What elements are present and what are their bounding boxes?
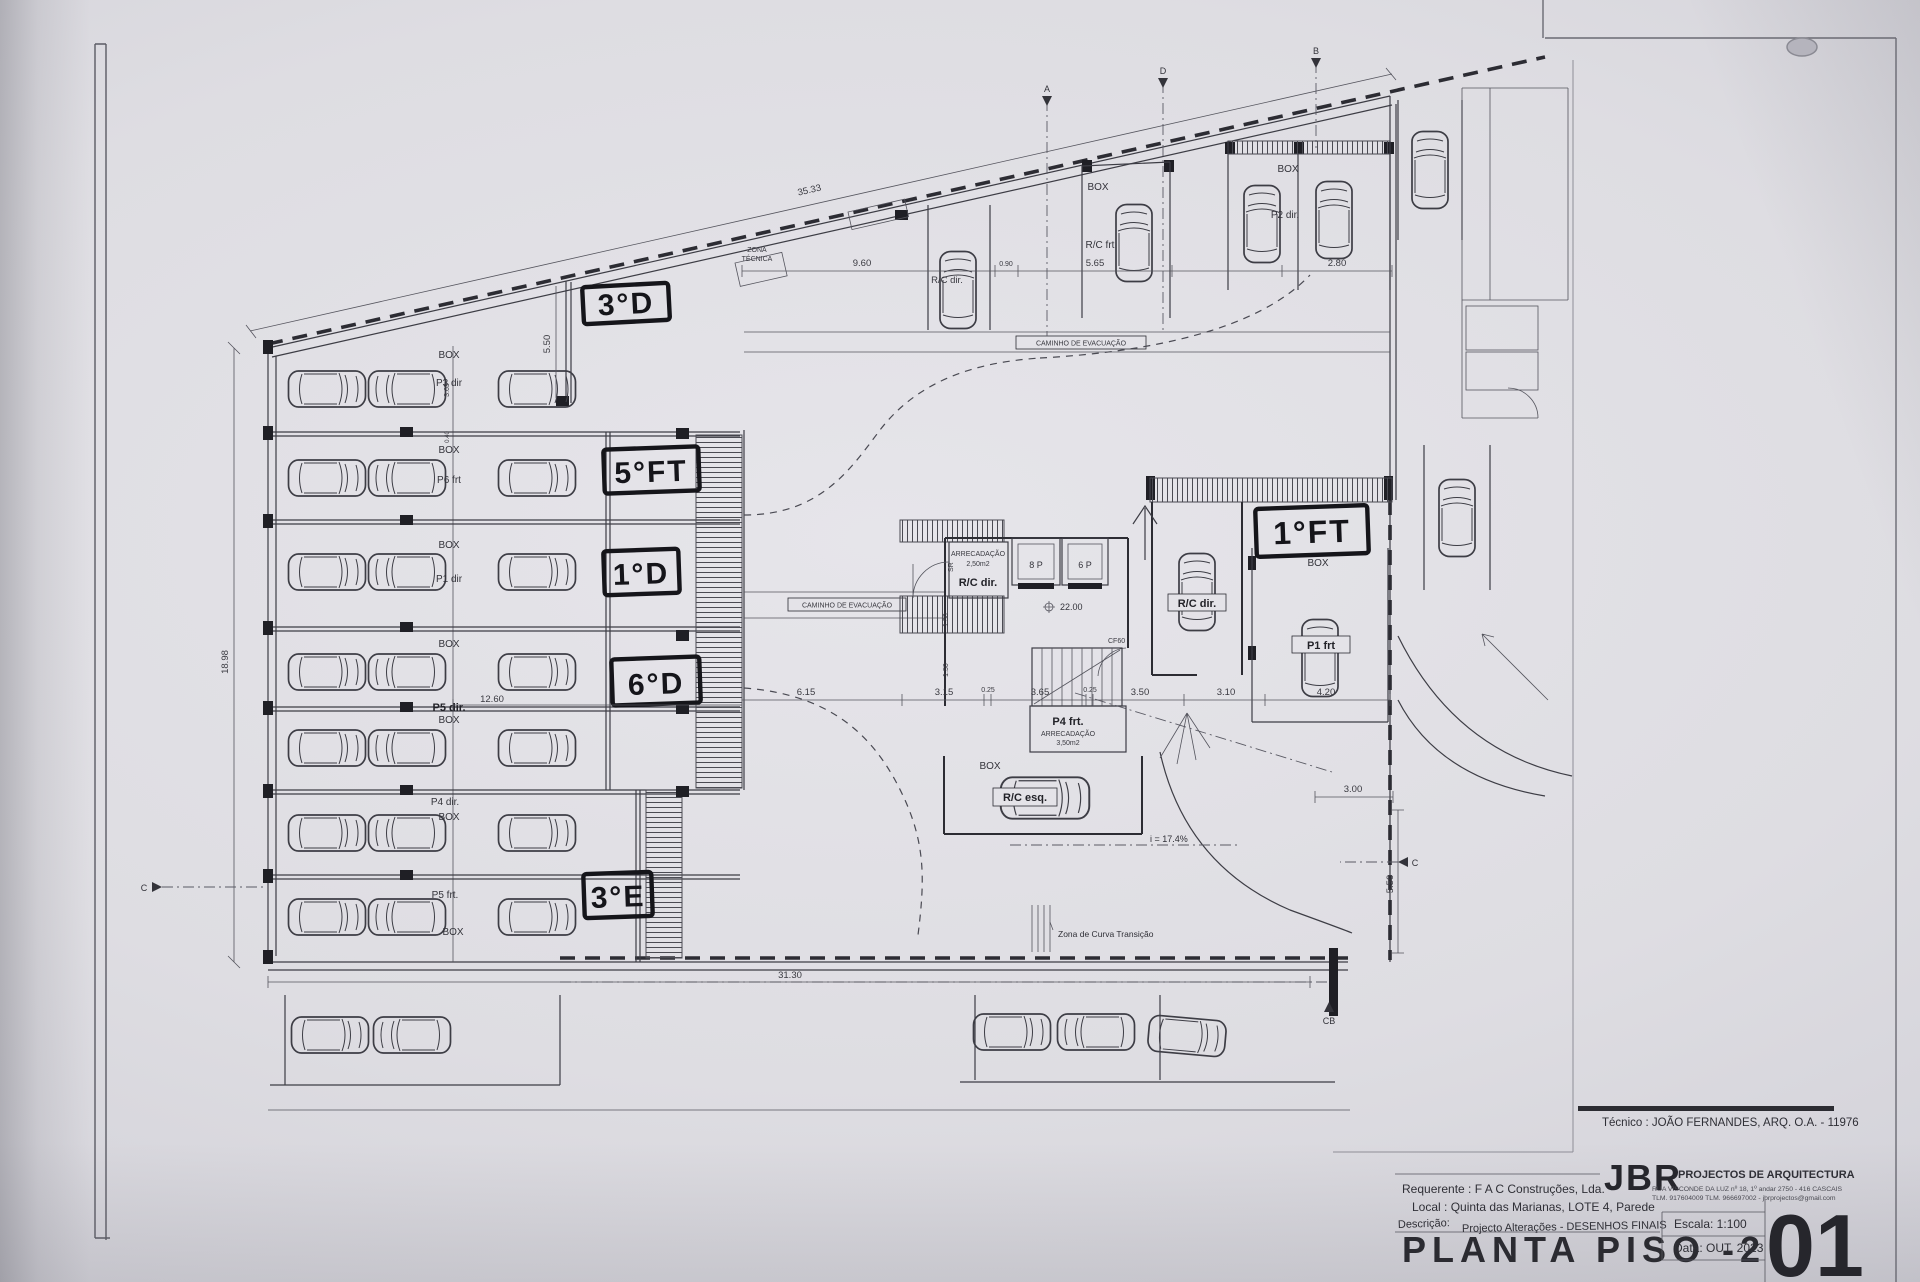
bottom-bay: BOX R/C esq. — [944, 756, 1142, 834]
bottom-bay-box-label: BOX — [979, 761, 1000, 772]
left-parking-walls — [268, 281, 744, 962]
storage-2-title: ARRECADAÇÃO — [1041, 729, 1096, 738]
plan-notes: i = 17.4% Zona de Curva Transição — [1050, 834, 1188, 939]
punch-hole — [1787, 38, 1817, 56]
storage-1-area: 2,50m2 — [966, 561, 989, 568]
top-parking-bays: R/C dir. BOX R/C frt BOX P2 dir. — [928, 141, 1390, 330]
stall-label: P6 frt — [437, 475, 461, 486]
section-marker-c-left: C — [141, 883, 148, 893]
lift-left-label: 8 P — [1029, 560, 1043, 570]
firm-name: PROJECTOS DE ARQUITECTURA — [1678, 1169, 1855, 1181]
stall-box-label: BOX — [442, 927, 463, 938]
handwritten-unit-1D: 1°D — [612, 557, 669, 592]
storage-1-title: ARRECADAÇÃO — [951, 549, 1006, 558]
ramp-car-unit-label: R/C dir. — [931, 275, 963, 286]
dim-left-total: 18.98 — [220, 650, 231, 674]
caminho-evacuacao-left-label: CAMINHO DE EVACUAÇÃO — [802, 601, 893, 610]
dim-core-b: 1.50 — [943, 663, 950, 677]
handwritten-unit-6D: 6°D — [627, 667, 684, 702]
dim-right-vertical: 5.50 — [1385, 875, 1396, 894]
dim-upper-left-vertical: 5.50 — [542, 335, 553, 354]
top-mid-box-label: BOX — [1087, 182, 1108, 193]
zona-tecnica: ZONA TÉCNICA — [735, 199, 909, 286]
stall-box-label: BOX — [438, 812, 459, 823]
top-right-unit-label: P2 dir. — [1271, 210, 1299, 221]
slope-label: i = 17.4% — [1150, 834, 1188, 844]
top-right-box-label: BOX — [1277, 164, 1298, 175]
stall-box-label: BOX — [438, 715, 459, 726]
storage-2-area: 3,50m2 — [1056, 740, 1079, 747]
handwritten-unit-5FT: 5°FT — [614, 455, 688, 491]
dim-top-1: 9.60 — [853, 258, 872, 269]
zona-tecnica-label-2: TÉCNICA — [742, 254, 773, 263]
photo-of-architectural-plan: BOX P3 dir BOX P6 frt BOX P1 dir BOX P5 … — [0, 0, 1920, 1282]
section-marker-cb: CB — [1323, 1016, 1336, 1026]
handwritten-unit-3D: 3°D — [597, 287, 655, 323]
dimensions: 35.33 18.98 9.60 0.90 5.65 2.80 12.60 6.… — [220, 68, 1404, 988]
parked-cars-left-block — [289, 371, 576, 935]
adjacent-structures — [1398, 88, 1572, 796]
sheet-frame — [95, 0, 1896, 1282]
stall-box-label: BOX — [438, 445, 459, 456]
dim-mid-5: 0.25 — [1083, 687, 1097, 694]
caminho-evacuacao-top-label: CAMINHO DE EVACUAÇÃO — [1036, 339, 1127, 348]
section-marker-b: B — [1313, 46, 1319, 56]
local-line: Local : Quinta das Marianas, LOTE 4, Par… — [1412, 1200, 1655, 1214]
bottom-bay-unit-label: R/C esq. — [1003, 792, 1047, 804]
section-marker-d: D — [1160, 66, 1167, 76]
dim-mid-8: 4.20 — [1317, 687, 1336, 698]
wall-pillars — [263, 142, 1394, 964]
stall-box-label: BOX — [438, 540, 459, 551]
center-bay-unit-label: R/C dir. — [1178, 598, 1217, 610]
dim-top-3: 5.65 — [1086, 258, 1105, 269]
dim-mid-6: 3.50 — [1131, 687, 1150, 698]
storage-1-code: SR — [948, 562, 955, 572]
stall-label: P5 dir. — [432, 702, 465, 714]
dim-mid-1: 6.15 — [797, 687, 816, 698]
section-marker-c-right: C — [1412, 858, 1419, 868]
dim-mid-4: 3.65 — [1031, 687, 1050, 698]
bottom-lot — [268, 995, 1350, 1110]
title-block: Técnico : JOÃO FERNANDES, ARQ. O.A. - 11… — [1395, 1106, 1864, 1282]
storage-1-unit: R/C dir. — [959, 577, 998, 589]
dim-mid-7: 3.10 — [1217, 687, 1236, 698]
handwritten-unit-3E: 3°E — [590, 880, 646, 915]
section-marker-a: A — [1044, 84, 1050, 94]
floor-plan-sheet: BOX P3 dir BOX P6 frt BOX P1 dir BOX P5 … — [0, 0, 1920, 1282]
evacuation-path-top: CAMINHO DE EVACUAÇÃO — [744, 332, 1390, 352]
fire-door-label: CF60 — [1108, 638, 1125, 645]
zona-tecnica-label-1: ZONA — [747, 247, 767, 254]
date-value: Data: OUT. 2023 — [1674, 1241, 1764, 1255]
firm-address: RUA VISCONDE DA LUZ nº 18, 1º andar 2750… — [1652, 1186, 1843, 1193]
level-datum: 22.00 — [1043, 601, 1083, 613]
level-value: 22.00 — [1060, 602, 1083, 612]
right-bays: R/C dir. BOX P1 frt — [1133, 478, 1392, 722]
stall-box-label: BOX — [438, 350, 459, 361]
stall-label: P1 dir — [436, 574, 463, 585]
dim-core-a: 1.50 — [943, 613, 950, 627]
handwritten-unit-1FT: 1°FT — [1273, 513, 1352, 552]
dim-bottom-total: 31.30 — [778, 970, 802, 981]
scale-value: Escala: 1:100 — [1674, 1217, 1747, 1231]
dim-stall-depth: 3.65 — [444, 383, 451, 397]
dim-top-2: 0.90 — [999, 261, 1013, 268]
dim-wall: 0.40 — [445, 431, 451, 443]
right-bay-unit-label: P1 frt — [1307, 640, 1335, 652]
requerente-line: Requerente : F A C Construções, Lda. — [1402, 1182, 1605, 1196]
curve-transition-label: Zona de Curva Transição — [1058, 929, 1154, 939]
sheet-number: 01 — [1766, 1196, 1864, 1282]
dim-mid-3: 0.25 — [981, 687, 995, 694]
dim-mid-2: 3.15 — [935, 687, 954, 698]
dim-top-4: 2.80 — [1328, 258, 1347, 269]
tecnico-line: Técnico : JOÃO FERNANDES, ARQ. O.A. - 11… — [1602, 1116, 1859, 1129]
lift-right-label: 6 P — [1078, 560, 1092, 570]
dim-3m: 3.00 — [1344, 784, 1363, 795]
storage-2-stall: P4 frt. — [1052, 716, 1083, 728]
right-bay-box-label: BOX — [1307, 558, 1328, 569]
dim-row-width: 12.60 — [480, 694, 504, 705]
dim-top-diagonal: 35.33 — [797, 183, 823, 199]
stall-box-label: BOX — [438, 639, 459, 650]
top-mid-unit-label: R/C frt — [1086, 240, 1115, 251]
central-core: ARRECADAÇÃO 2,50m2 SR R/C dir. 8 P 6 P 2… — [900, 520, 1128, 752]
